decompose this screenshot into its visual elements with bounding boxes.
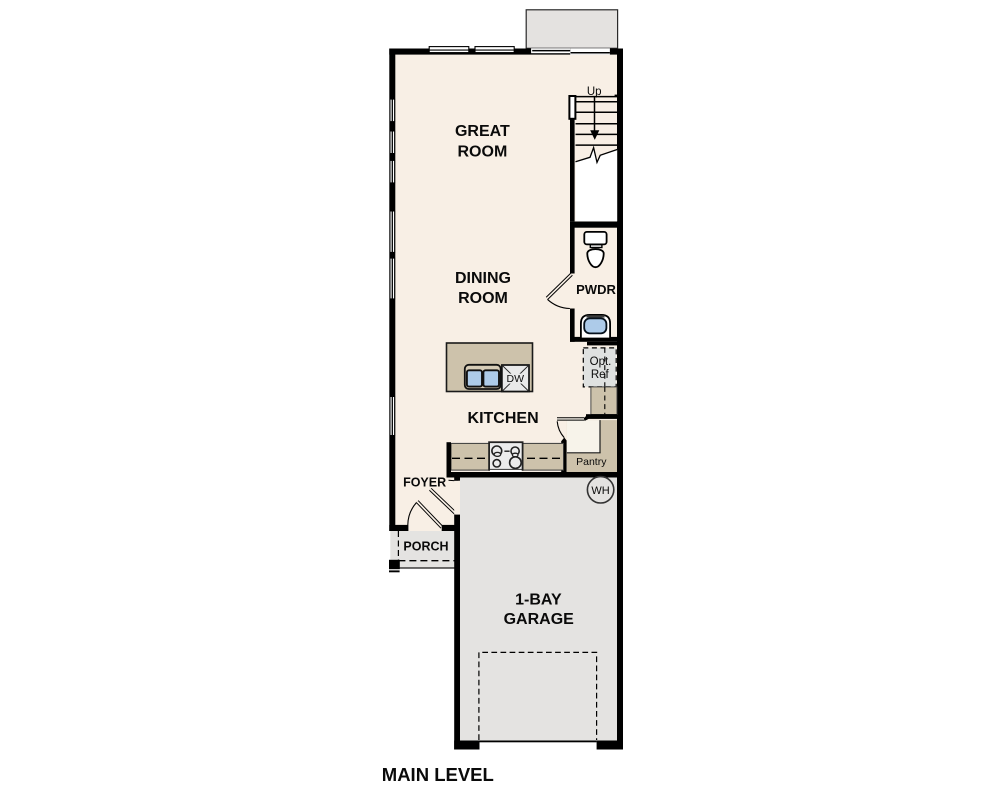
svg-text:FOYER: FOYER [403,475,446,489]
svg-text:Ref: Ref [591,369,610,381]
svg-text:DW: DW [507,373,525,385]
svg-text:Pantry: Pantry [576,456,607,468]
svg-text:1-BAY: 1-BAY [515,591,562,608]
svg-text:WH: WH [591,485,609,497]
svg-text:GARAGE: GARAGE [504,611,575,628]
svg-text:DINING: DINING [455,270,511,287]
svg-text:ROOM: ROOM [458,290,508,307]
svg-text:GREAT: GREAT [455,123,510,140]
svg-text:ROOM: ROOM [458,144,508,161]
svg-text:Opt.: Opt. [590,356,612,368]
svg-text:KITCHEN: KITCHEN [468,410,539,427]
svg-text:MAIN LEVEL: MAIN LEVEL [382,764,494,785]
svg-text:PWDR: PWDR [576,282,616,297]
svg-text:PORCH: PORCH [403,540,448,554]
